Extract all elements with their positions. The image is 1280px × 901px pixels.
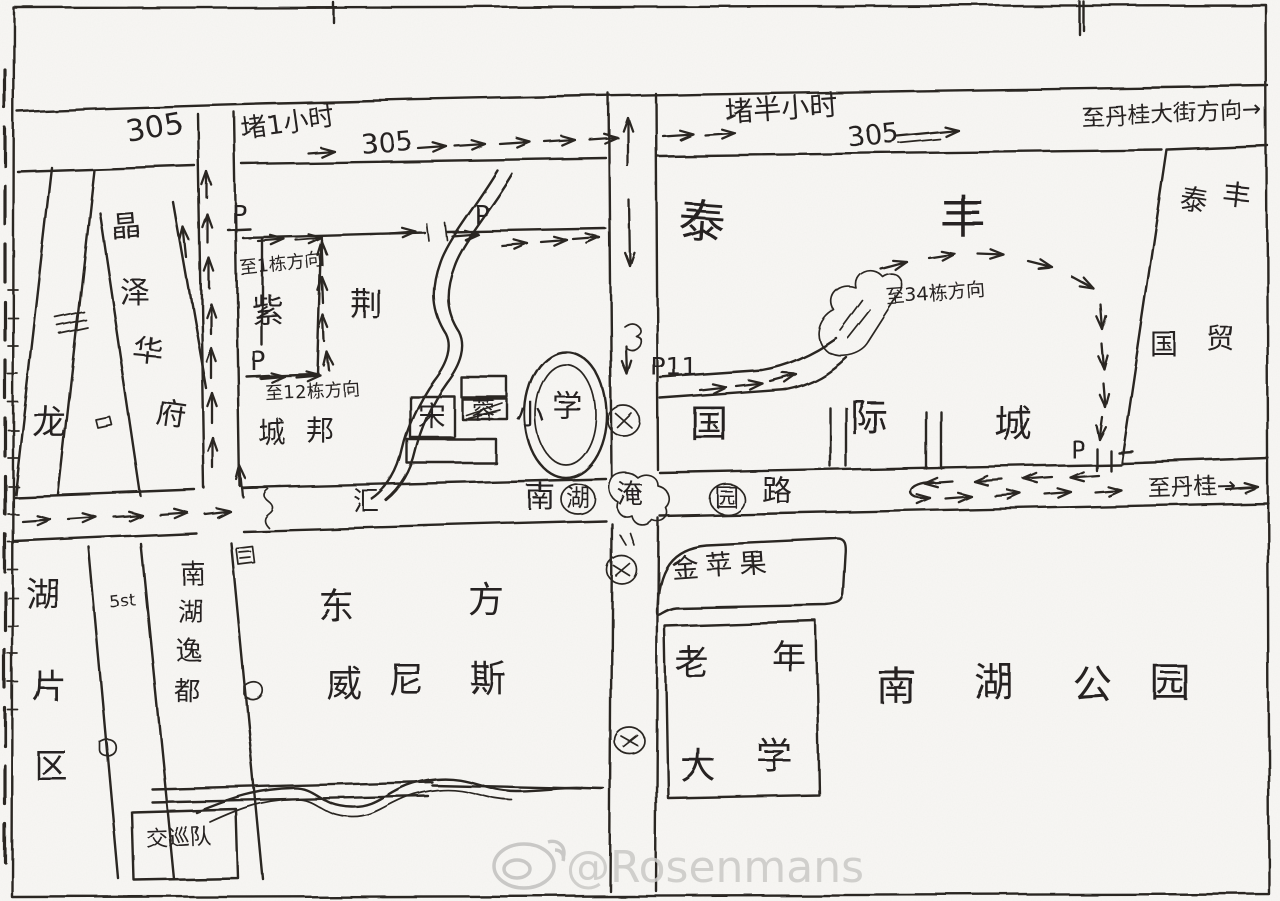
paper-grain [0, 0, 1280, 901]
watermark-handle: @Rosenmans [566, 842, 864, 893]
park-char: 公 [1072, 662, 1112, 708]
direction-note-dangui: 至丹桂→ [1147, 473, 1236, 502]
note-5st: 5st [108, 590, 137, 613]
district-char: 片 [32, 667, 66, 707]
route-arrow [323, 278, 324, 304]
flood-note: 淹 [617, 480, 643, 510]
parking-mark: P [474, 201, 490, 231]
block-char: 丰 [940, 190, 986, 244]
route-arrow [626, 346, 627, 374]
landmark-char: 年 [772, 638, 806, 678]
road-name-char-circled: 湖 [566, 484, 590, 512]
block-char: 泰 [1177, 181, 1210, 218]
block-char: 国 [690, 402, 728, 446]
compound-char: 紫 [252, 292, 284, 330]
park-char: 湖 [974, 660, 1014, 706]
compound-char: 威 [326, 664, 362, 705]
block-char: 泰 [677, 193, 727, 250]
road-char-hui: 汇 [353, 487, 379, 517]
parking-mark-p11: P11 [651, 352, 698, 381]
compound-char: 尼 [388, 660, 424, 701]
hand-drawn-map: 305 堵1小时 305 堵半小时 305 至丹桂大街方向→ P P P P P… [0, 0, 1280, 901]
district-char: 区 [34, 747, 68, 787]
park-char: 园 [1150, 660, 1190, 706]
bus-route-label: 305 [360, 126, 414, 161]
block-char: 丰 [1221, 178, 1252, 214]
block-char: 城 [994, 402, 1032, 446]
school-char: 学 [552, 389, 582, 424]
road-name-char-circled: 园 [715, 484, 739, 512]
compound-char: 方 [468, 580, 504, 621]
school-char: 宋 [418, 400, 446, 433]
compound-char: 城 [258, 416, 286, 449]
route-arrow [324, 316, 325, 342]
district-char: 龙 [32, 403, 66, 443]
compound-char: 晶 [110, 208, 143, 245]
road-name-char: 南 [525, 480, 555, 515]
district-char: 湖 [26, 575, 60, 615]
landmark-char: 老 [674, 643, 708, 683]
compound-char: 南 [180, 560, 206, 590]
compound-char: 泽 [120, 276, 150, 311]
compound-char: 湖 [178, 598, 204, 628]
school-char: 小 [516, 398, 544, 431]
parking-mark: P [250, 347, 266, 377]
compound-char: 都 [174, 677, 200, 707]
route-arrow [629, 200, 630, 266]
compound-char: 逸 [176, 637, 202, 667]
route-arrow [978, 254, 1004, 255]
parking-mark: P [1071, 436, 1085, 464]
compound-char: 华 [131, 333, 164, 370]
map-canvas: 305 堵1小时 305 堵半小时 305 至丹桂大街方向→ P P P P P… [0, 0, 1280, 901]
school-char: 蓉 [471, 396, 495, 424]
road-name-char: 路 [762, 474, 792, 509]
compound-char: 东 [318, 586, 354, 627]
compound-char: 府 [154, 395, 189, 434]
block-char: 国 [1150, 328, 1178, 361]
compound-char: 邦 [306, 414, 334, 447]
block-char: 际 [850, 396, 888, 440]
park-char: 南 [876, 664, 916, 710]
bus-route-label: 305 [845, 117, 900, 153]
patrol-team-label: 交巡队 [145, 825, 212, 852]
landmark-char: 大 [680, 746, 716, 787]
block-char: 贸 [1206, 322, 1234, 355]
compound-char: 斯 [470, 659, 506, 700]
parking-mark: P [232, 201, 248, 231]
compound-char: 荆 [350, 285, 382, 323]
landmark-char: 学 [756, 736, 792, 777]
